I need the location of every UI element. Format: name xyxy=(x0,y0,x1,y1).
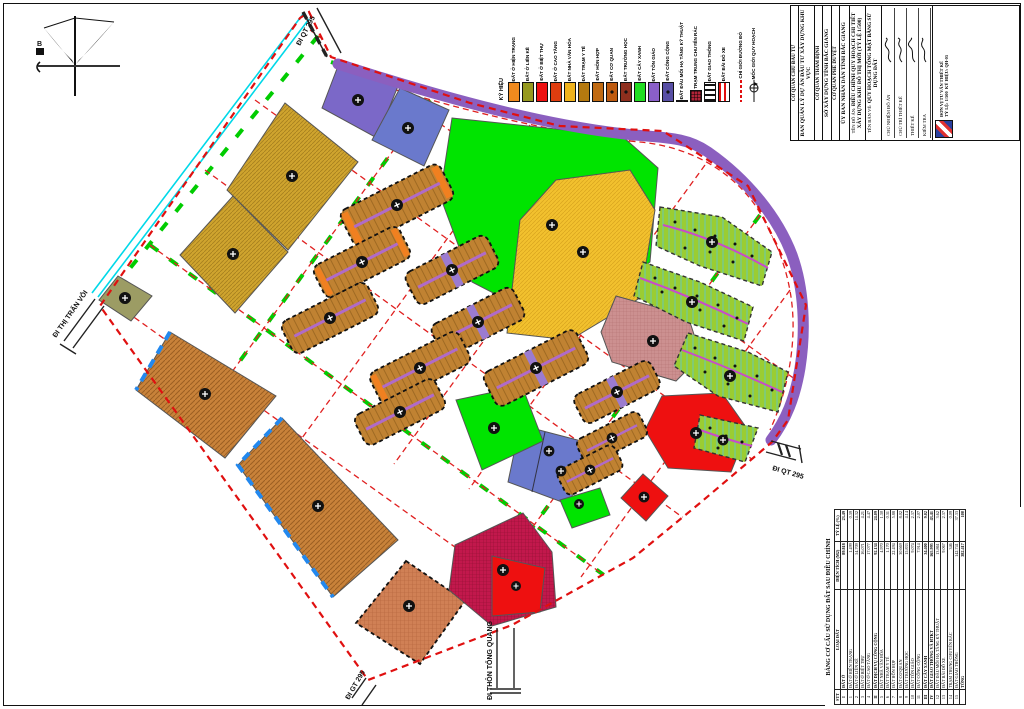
legend-item-label: ĐẤT NHÀ VĂN HÓA xyxy=(568,38,573,81)
legend-item: ĐẤT Ở CAO TẦNG xyxy=(550,26,562,102)
road-label-east: ĐI QT 295 xyxy=(771,465,804,481)
title-block: CƠ QUAN CHỦ ĐẦU TƯ BAN QUẢN LÝ DỰ ÁN ĐẦU… xyxy=(790,5,1020,141)
table-row: TỔNG382.417100 xyxy=(960,510,966,705)
legend-item: ĐẤT BÃI ĐỖ XE xyxy=(718,26,730,102)
benchmark-symbol-icon xyxy=(749,80,759,102)
legend-swatch-icon xyxy=(620,82,632,102)
drawing-label: TÊN BẢN VẼ: xyxy=(867,105,872,133)
legend-item-label: ĐẤT ĐẦU MỐI HẠ TẦNG KỸ THUẬT xyxy=(680,22,685,99)
title-block-approve-header: CƠ QUAN PHÊ DUYỆT xyxy=(832,6,840,140)
legend-item: ĐẤT TRƯỜNG HỌC xyxy=(620,26,632,102)
legend-item-label: ĐẤT Ở HIỆN TRẠNG xyxy=(512,37,517,82)
signature-mark xyxy=(907,8,919,65)
legend-swatch-icon xyxy=(592,82,604,102)
legend-item-label: ĐẤT Ở LIỀN KỀ xyxy=(526,47,531,81)
legend-swatch-icon xyxy=(578,82,590,102)
north-arrow-icon: B xyxy=(36,16,120,96)
parcels xyxy=(99,66,788,664)
signature-role: THIẾT KẾ xyxy=(907,65,919,138)
legend-item-label: ĐẤT Ở CAO TẦNG xyxy=(554,41,559,81)
legend-item: ĐẤT TRẠM Y TẾ xyxy=(578,26,590,102)
legend-item: ĐẤT TÔN GIÁO xyxy=(648,26,660,102)
drawing-title: QUY HOẠCH TỔNG MẶT BẰNG SỬ DỤNG ĐẤT xyxy=(867,13,879,103)
legend-items: ĐẤT Ở HIỆN TRẠNGĐẤT Ở LIỀN KỀĐẤT Ở BIỆT … xyxy=(508,26,730,102)
legend-item-label: ĐẤT CÔNG CỘNG xyxy=(666,41,671,81)
legend-swatch-icon xyxy=(564,82,576,102)
legend-title: KÝ HIỆU xyxy=(499,78,505,100)
signature-grid: CHỦ NHIỆM ĐỒ ÁN CHỦ TRÌ THIẾT KẾ THIẾT K… xyxy=(882,6,933,140)
title-block-approve-name: ỦY BAN NHÂN DÂN TỈNH BẮC GIANG xyxy=(840,6,849,140)
legend-swatch-icon xyxy=(606,82,618,102)
legend-swatch-icon xyxy=(718,82,730,102)
legend-item: ĐẤT ĐẦU MỐI HẠ TẦNG KỸ THUẬT xyxy=(676,26,688,102)
table-cell: TỔNG xyxy=(960,590,966,690)
legend-swatch-icon xyxy=(634,82,646,102)
legend-item-label: ĐẤT HỖN HỢP xyxy=(596,48,601,81)
scale-label: TỶ LỆ: xyxy=(944,102,949,117)
title-block-agency-header: CƠ QUAN CHỦ ĐẦU TƯ xyxy=(791,6,799,140)
land-use-table: STT LOẠI ĐẤT DIỆN TÍCH (M2) TỶ LỆ (%) IĐ… xyxy=(834,509,966,705)
legend: KÝ HIỆU ĐẤT Ở HIỆN TRẠNGĐẤT Ở LIỀN KỀĐẤT… xyxy=(499,26,759,102)
legend-swatch-icon xyxy=(690,90,702,102)
legend-item: ĐẤT Ở LIỀN KỀ xyxy=(522,26,534,102)
title-block-review-name: SỞ XÂY DỰNG TỈNH BẮC GIANG xyxy=(823,6,832,140)
table-cell: 100 xyxy=(960,510,966,542)
legend-item-label: ĐẤT TRẠM Y TẾ xyxy=(582,46,587,81)
legend-line-label: CHỈ GIỚI ĐƯỜNG ĐỎ xyxy=(739,32,744,79)
legend-swatch-icon xyxy=(648,82,660,102)
signature-mark xyxy=(883,8,895,65)
legend-item: ĐẤT HỖN HỢP xyxy=(592,26,604,102)
legend-item-label: ĐẤT Ở BIỆT THỰ xyxy=(540,43,545,81)
road-label-south: ĐI THÔN TỔNG QUANG xyxy=(485,621,494,700)
legend-swatch-icon xyxy=(508,82,520,102)
legend-item: ĐẤT CÂY XANH xyxy=(634,26,646,102)
legend-swatch-icon xyxy=(704,82,716,102)
title-block-agency-name: BAN QUẢN LÝ DỰ ÁN ĐẦU TƯ XÂY DỰNG KHU VỰ… xyxy=(799,6,815,140)
legend-item: TRẠM TRUNG CHUYỂN RÁC xyxy=(690,26,702,102)
legend-line-items: CHỈ GIỚI ĐƯỜNG ĐỎ MỐC GIỚI QUY HOẠCH xyxy=(736,26,759,102)
land-use-table-title: BẢNG CƠ CẤU SỬ DỤNG ĐẤT SAU ĐIỀU CHỈNH xyxy=(826,507,832,707)
table-cell: 382.417 xyxy=(960,542,966,590)
drawing-no-value: QH-05 xyxy=(944,55,949,68)
legend-item: ĐẤT CÔNG CỘNG xyxy=(662,26,674,102)
legend-item: ĐẤT NHÀ VĂN HÓA xyxy=(564,26,576,102)
signature-role: KIỂM TRA xyxy=(919,65,931,138)
signature-mark xyxy=(919,8,931,65)
legend-item: ĐẤT Ở BIỆT THỰ xyxy=(536,26,548,102)
table-cell xyxy=(960,690,966,705)
drawing-no-label: KÝ HIỆU: xyxy=(944,69,949,89)
project-label: TÊN ĐỒ ÁN: xyxy=(851,108,856,134)
land-use-table-block: BẢNG CƠ CẤU SỬ DỤNG ĐẤT SAU ĐIỀU CHỈNH S… xyxy=(825,507,1021,707)
red-line-symbol-icon xyxy=(736,80,746,102)
legend-item-label: ĐẤT GIAO THÔNG xyxy=(708,41,713,81)
drawing-sheet: ĐI QT 295 ĐI THỊ TRẤN VÔI ĐI GT 295 ĐI T… xyxy=(0,0,1024,709)
legend-item-label: ĐẤT CÂY XANH xyxy=(638,46,643,81)
legend-swatch-icon xyxy=(536,82,548,102)
legend-item-label: TRẠM TRUNG CHUYỂN RÁC xyxy=(694,26,699,89)
legend-swatch-icon xyxy=(550,82,562,102)
road-label-southwest: ĐI GT 295 xyxy=(345,669,367,701)
legend-swatch-icon xyxy=(522,82,534,102)
north-label: B xyxy=(37,41,42,48)
signature-mark xyxy=(895,8,907,65)
legend-line-label: MỐC GIỚI QUY HOẠCH xyxy=(752,28,757,79)
legend-swatch-icon xyxy=(676,100,688,102)
legend-item-label: ĐẤT TÔN GIÁO xyxy=(652,48,657,81)
legend-item-label: ĐẤT CƠ QUAN xyxy=(610,48,615,81)
scale-value: 1/500 xyxy=(944,91,949,101)
legend-item: ĐẤT Ở HIỆN TRẠNG xyxy=(508,26,520,102)
signature-role: CHỦ NHIỆM ĐỒ ÁN xyxy=(883,65,895,138)
title-block-review-header: CƠ QUAN THẨM ĐỊNH xyxy=(815,6,823,140)
legend-swatch-icon xyxy=(662,82,674,102)
signature-role: CHỦ TRÌ THIẾT KẾ xyxy=(895,65,907,138)
company-logo xyxy=(935,120,953,138)
legend-item: ĐẤT CƠ QUAN xyxy=(606,26,618,102)
legend-item-label: ĐẤT BÃI ĐỖ XE xyxy=(722,47,727,81)
legend-item-label: ĐẤT TRƯỜNG HỌC xyxy=(624,38,629,81)
legend-item: ĐẤT GIAO THÔNG xyxy=(704,26,716,102)
